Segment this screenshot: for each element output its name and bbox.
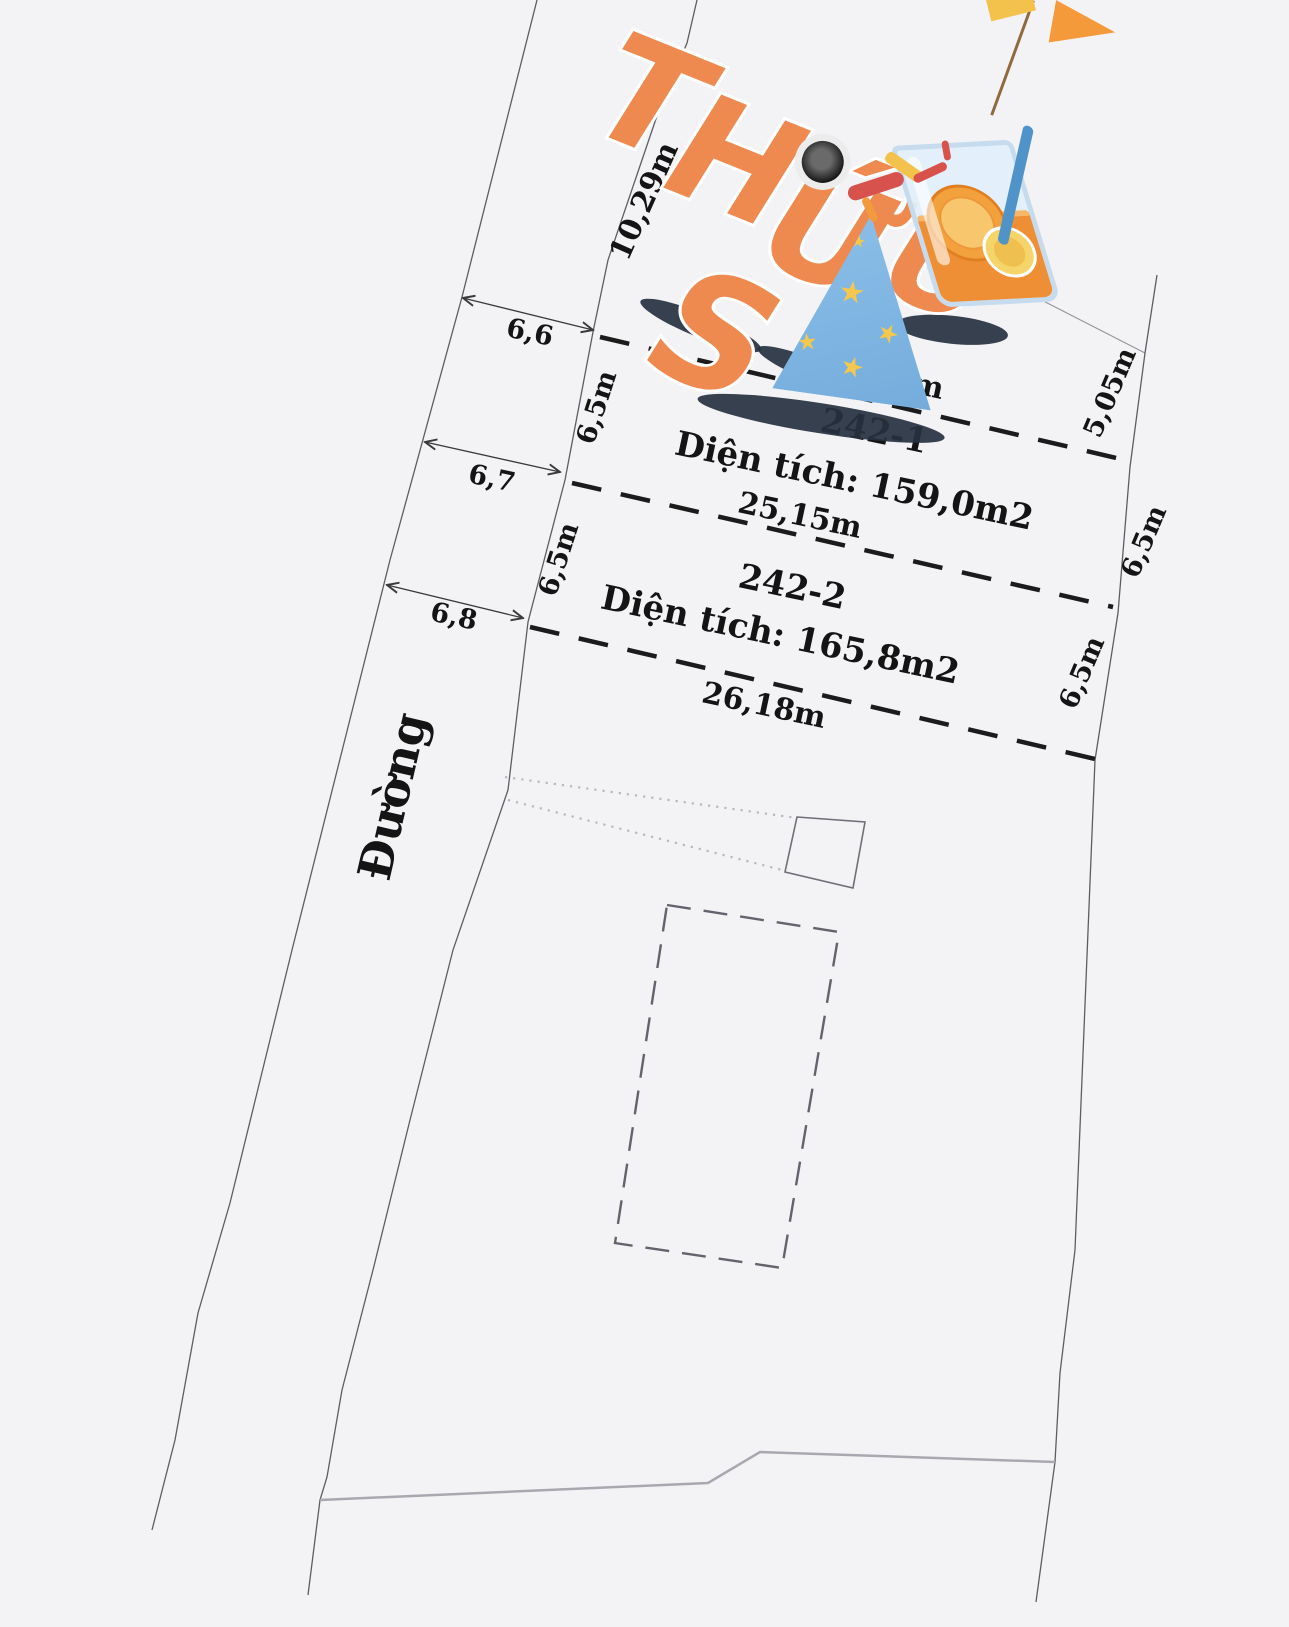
dim-road-width-bottom: 6,8	[428, 597, 480, 637]
east-boundary-line	[1036, 275, 1157, 1602]
survey-drawing: 10,29m 6,6 6,5m 6,7 6,5m 6,8 Đường 24,11…	[0, 0, 1289, 1627]
dim-west-depth-2: 6,5m	[533, 519, 586, 600]
dim-edge-24-11: 24,11m	[817, 347, 947, 407]
dotted-line-lower	[508, 800, 786, 871]
road-name-label: Đường	[347, 708, 438, 886]
land-plot-sketch: { "banner": { "letters_top": ["T", "H", …	[0, 0, 1289, 1627]
building-footprint-dashed	[615, 905, 839, 1268]
dim-top-boundary: 10,29m	[603, 136, 686, 265]
road-left-edge-line	[152, 0, 537, 1530]
north-boundary-line	[1012, 285, 1145, 353]
dim-edge-26-18: 26,18m	[699, 676, 829, 736]
south-boundary-line	[320, 1452, 1055, 1500]
dim-east-top: 5,05m	[1077, 343, 1142, 442]
dotted-line-upper	[505, 777, 797, 818]
dim-east-depth-2: 6,5m	[1053, 632, 1111, 714]
dim-road-width-mid: 6,7	[466, 459, 518, 499]
small-structure-outline	[785, 817, 865, 888]
